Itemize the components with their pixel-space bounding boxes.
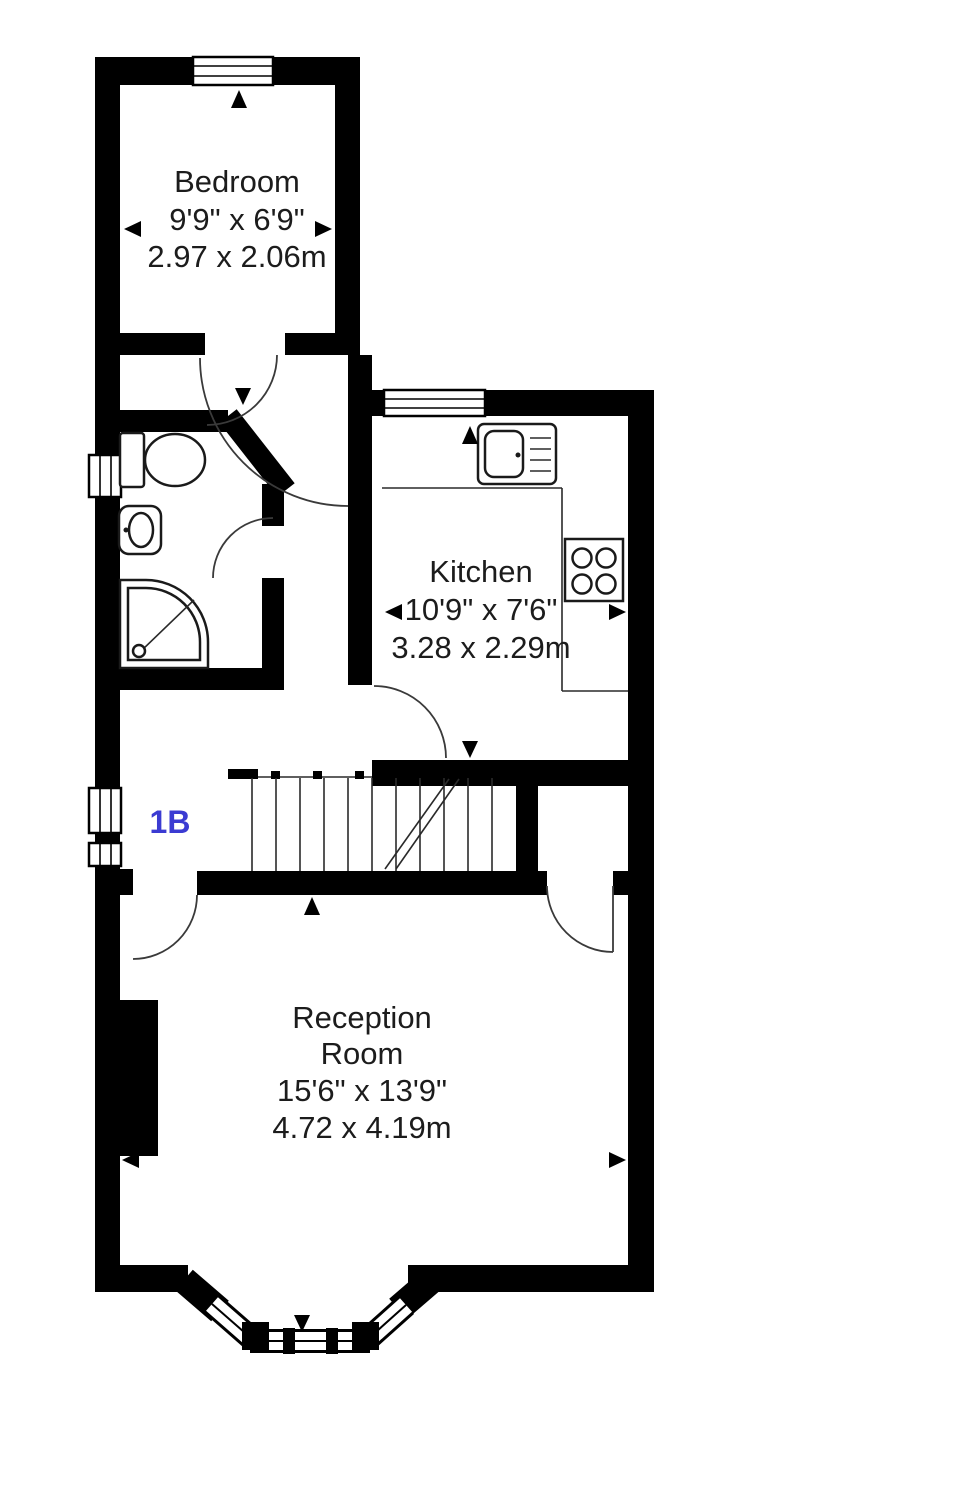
bedroom-arrow-down [235,388,251,405]
kitchen-arrow-left [385,604,402,620]
washbasin-icon [119,506,161,554]
bedroom-arrow-up [231,90,247,108]
kitchen-sink-icon [478,424,556,484]
window-kitchen [384,390,485,416]
kitchen-dim-metric: 3.28 x 2.29m [391,630,570,665]
reception-dim-metric: 4.72 x 4.19m [272,1110,451,1145]
toilet-icon [120,433,205,487]
stair-treads [252,778,492,871]
bedroom-name: Bedroom [174,164,300,199]
kitchen-arrow-down [462,741,478,758]
window-hall-upper [89,788,121,833]
unit-label: 1B [150,804,191,840]
window-hall-lower [89,843,121,866]
dimension-arrows [122,90,626,1332]
bedroom-arrow-right [315,221,332,237]
floorplan-page: Bedroom 9'9" x 6'9" 2.97 x 2.06m Kitchen… [0,0,980,1500]
hall-entrance-door-arc [133,895,197,959]
reception-name-line1: Reception [292,1000,432,1035]
bedroom-arrow-left [124,221,141,237]
reception-arrow-right [609,1152,626,1168]
hob-icon [565,539,623,601]
chimney-breast [118,1000,158,1156]
kitchen-door-arc [374,686,446,758]
bedroom-dim-metric: 2.97 x 2.06m [147,239,326,274]
bedroom-dim-imperial: 9'9" x 6'9" [169,202,305,237]
shower-icon [120,580,208,668]
floorplan-canvas: Bedroom 9'9" x 6'9" 2.97 x 2.06m Kitchen… [0,0,980,1500]
bathroom-door-arc [213,518,273,578]
kitchen-name: Kitchen [429,554,532,589]
window-bedroom [193,57,273,85]
kitchen-dim-imperial: 10'9" x 7'6" [405,592,558,627]
reception-arrow-up [304,897,320,915]
reception-name-line2: Room [321,1036,404,1071]
kitchen-arrow-right [609,604,626,620]
window-bathroom [89,455,121,497]
reception-dim-imperial: 15'6" x 13'9" [277,1073,447,1108]
kitchen-arrow-up [462,426,478,444]
reception-door-arc [547,886,613,952]
